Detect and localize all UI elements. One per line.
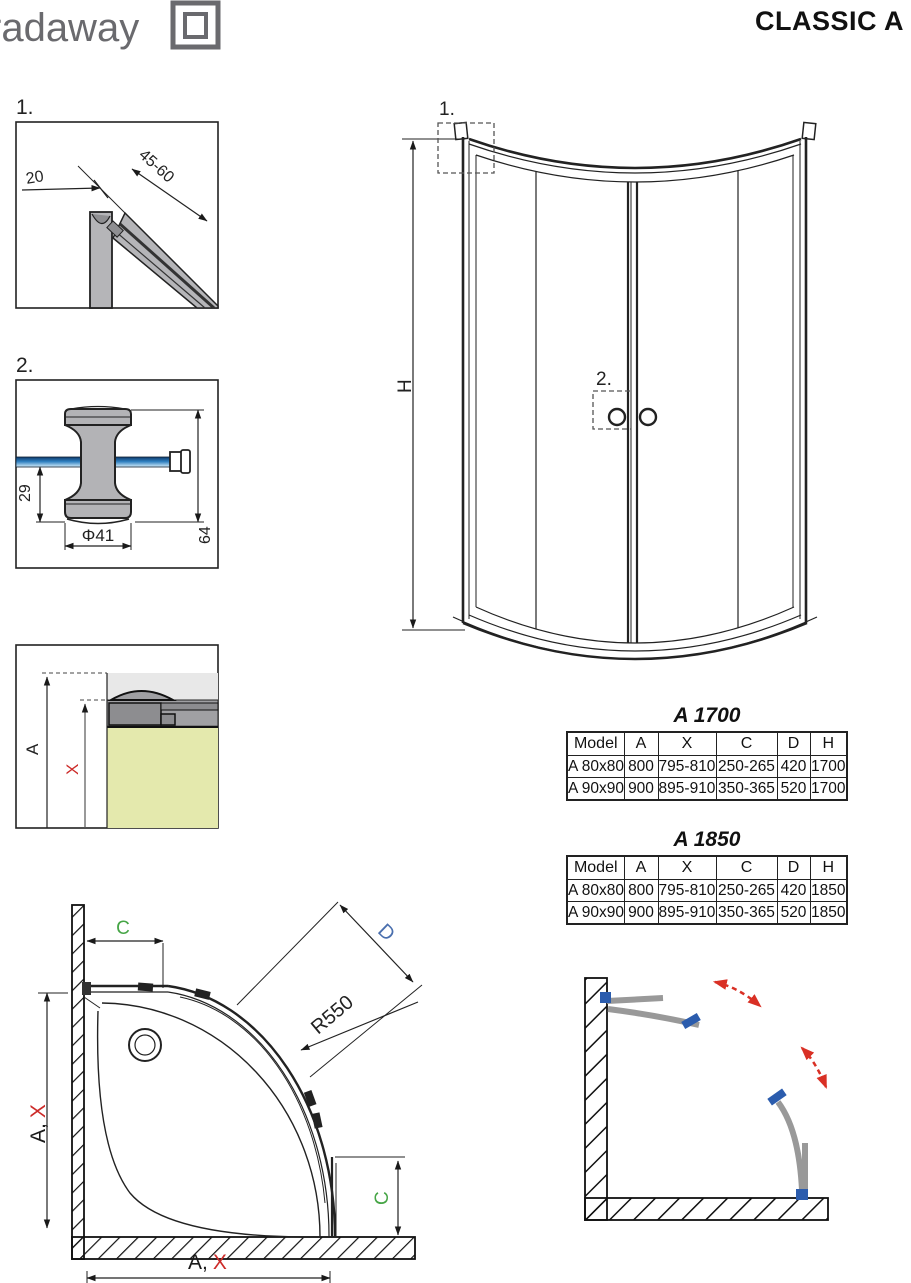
col-header-c: C — [716, 732, 777, 756]
cell-x: 795-810 — [658, 880, 716, 902]
detail-1-corner-profile: 1. 20 45-60 — [14, 92, 226, 316]
table-title: A 1850 — [566, 828, 848, 852]
cell-d: 520 — [777, 778, 810, 801]
callout-label-1: 1. — [439, 99, 455, 120]
cell-x: 895-910 — [658, 902, 716, 925]
detail-1-drawing — [22, 166, 218, 308]
col-header-a: A — [624, 732, 658, 756]
cell-h: 1700 — [810, 756, 847, 778]
dim-label-29: 29 — [17, 484, 34, 502]
wall-bottom — [585, 1198, 828, 1220]
cell-a: 800 — [624, 756, 658, 778]
wall-left — [585, 978, 607, 1220]
anchor-top — [600, 992, 611, 1003]
col-header-a: A — [624, 856, 658, 880]
cell-model: A 80x80 — [567, 880, 624, 902]
plan-drawing — [38, 902, 422, 1283]
swing-drawing — [585, 978, 828, 1220]
logo-text: radaway — [0, 6, 139, 50]
col-header-h: H — [810, 732, 847, 756]
col-header-model: Model — [567, 856, 624, 880]
dim-label-a: A — [23, 743, 42, 755]
table-row: A 80x80 800 795-810 250-265 420 1700 — [567, 756, 847, 778]
wall-left — [72, 905, 84, 1259]
swing-arrow-bottom — [802, 1048, 826, 1087]
dim-label-45-60: 45-60 — [135, 146, 177, 186]
cell-model: A 80x80 — [567, 756, 624, 778]
callout-label-2: 2. — [596, 369, 612, 390]
table-title: A 1700 — [566, 704, 848, 728]
cell-h: 1850 — [810, 902, 847, 925]
roller-bracket — [138, 983, 154, 992]
cell-c: 350-365 — [716, 902, 777, 925]
swing-arrow-top — [715, 982, 760, 1006]
col-header-model: Model — [567, 732, 624, 756]
table-row: A 90x90 900 895-910 350-365 520 1700 — [567, 778, 847, 801]
radaway-logo: radaway — [0, 0, 232, 56]
table-header-row: Model A X C D H — [567, 732, 847, 756]
table-row: A 90x90 900 895-910 350-365 520 1850 — [567, 902, 847, 925]
cell-model: A 90x90 — [567, 778, 624, 801]
cell-a: 800 — [624, 880, 658, 902]
cell-a: 900 — [624, 902, 658, 925]
cell-d: 420 — [777, 756, 810, 778]
fixed-panel-top — [607, 998, 663, 1001]
anchor-bottom — [796, 1189, 808, 1200]
cell-x: 895-910 — [658, 778, 716, 801]
dim-label-ax-bottom: A,X — [188, 1251, 227, 1274]
col-header-x: X — [658, 732, 716, 756]
cell-a: 900 — [624, 778, 658, 801]
detail-3-drawing — [42, 673, 218, 828]
dim-label-h: H — [395, 379, 416, 393]
cell-c: 350-365 — [716, 778, 777, 801]
table-header-row: Model A X C D H — [567, 856, 847, 880]
datasheet-page: radaway CLASSIC A 1. 20 45-60 — [0, 0, 911, 1283]
col-header-h: H — [810, 856, 847, 880]
table-row: A 80x80 800 795-810 250-265 420 1850 — [567, 880, 847, 902]
detail-1-label: 1. — [16, 96, 34, 119]
cell-h: 1700 — [810, 778, 847, 801]
col-header-d: D — [777, 856, 810, 880]
dim-label-c-right: C — [372, 1191, 393, 1205]
spec-table-a1850: A 1850 Model A X C D H A 80x80 800 795-8… — [566, 828, 848, 925]
roller-bracket — [194, 988, 210, 999]
dim-label-r550: R550 — [307, 991, 358, 1039]
cell-x: 795-810 — [658, 756, 716, 778]
sliding-door-bottom — [778, 1102, 802, 1190]
dim-label-20: 20 — [25, 168, 45, 188]
wall-bottom — [72, 1237, 415, 1259]
dim-label-c-top: C — [116, 918, 130, 939]
col-header-d: D — [777, 732, 810, 756]
cell-model: A 90x90 — [567, 902, 624, 925]
dim-label-ax-left: A,X — [27, 1104, 50, 1143]
dim-label-x: X — [63, 764, 82, 775]
col-header-x: X — [658, 856, 716, 880]
logo-square-icon — [173, 3, 218, 47]
dim-label-64: 64 — [197, 526, 214, 544]
spec-table-a1700: A 1700 Model A X C D H A 80x80 800 795-8… — [566, 704, 848, 801]
cell-c: 250-265 — [716, 756, 777, 778]
cell-d: 420 — [777, 880, 810, 902]
elevation-drawing — [402, 122, 817, 659]
cell-d: 520 — [777, 902, 810, 925]
door-swing-diagram — [575, 965, 855, 1240]
plan-view: C D R550 C A,X A,X — [20, 895, 445, 1283]
dim-label-d: D — [373, 920, 399, 946]
roller-bracket — [312, 1112, 323, 1128]
door-handle-left — [609, 409, 625, 425]
cell-c: 250-265 — [716, 880, 777, 902]
detail-2-roller: 2. 29 Φ41 64 — [14, 352, 226, 582]
dim-label-phi41: Φ41 — [82, 526, 114, 545]
detail-3-section: A X — [14, 640, 226, 836]
col-header-c: C — [716, 856, 777, 880]
door-handle-right — [640, 409, 656, 425]
page-title: CLASSIC A — [755, 6, 904, 37]
drain — [129, 1029, 161, 1061]
elevation-view: H 1. 2. — [385, 95, 835, 660]
detail-2-label: 2. — [16, 354, 34, 377]
cell-h: 1850 — [810, 880, 847, 902]
